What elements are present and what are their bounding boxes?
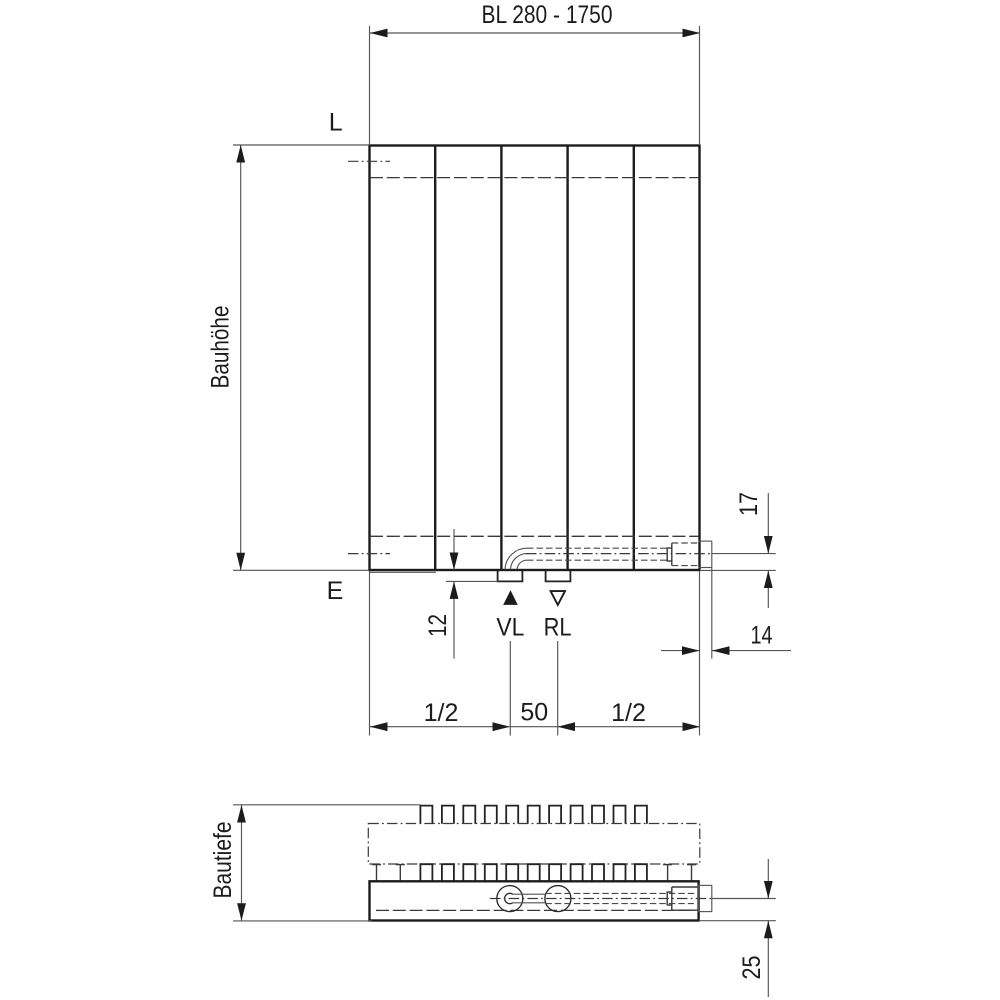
- svg-text:1/2: 1/2: [611, 699, 646, 727]
- svg-text:BL 280 - 1750: BL 280 - 1750: [482, 1, 613, 29]
- svg-text:50: 50: [520, 699, 548, 727]
- svg-text:25: 25: [738, 956, 766, 980]
- svg-text:L: L: [329, 109, 343, 137]
- svg-text:RL: RL: [544, 614, 572, 642]
- svg-text:14: 14: [751, 622, 773, 650]
- svg-text:12: 12: [424, 614, 452, 637]
- svg-text:Bauhöhe: Bauhöhe: [207, 306, 235, 389]
- svg-text:1/2: 1/2: [424, 699, 459, 727]
- svg-text:Bautiefe: Bautiefe: [209, 822, 237, 899]
- svg-text:VL: VL: [496, 614, 524, 642]
- svg-text:17: 17: [735, 492, 763, 516]
- svg-text:E: E: [327, 577, 344, 605]
